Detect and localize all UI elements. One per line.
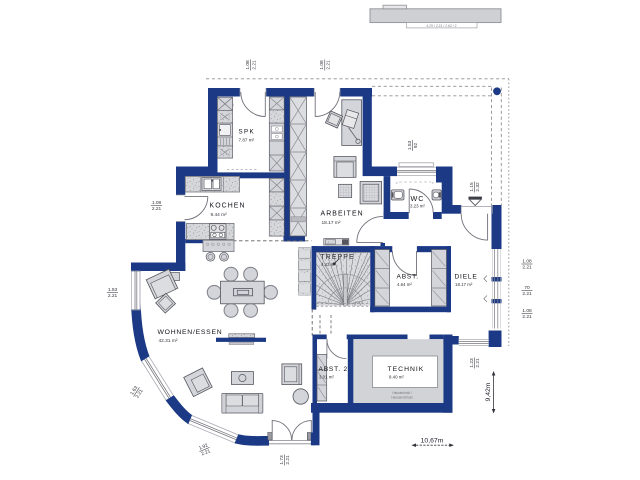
svg-text:DIELE: DIELE bbox=[455, 274, 478, 281]
svg-text:9.44 m²: 9.44 m² bbox=[211, 212, 228, 218]
svg-text:2.21: 2.21 bbox=[522, 314, 532, 320]
svg-text:18.17 m²: 18.17 m² bbox=[322, 220, 341, 226]
svg-text:42.31 m²: 42.31 m² bbox=[159, 338, 178, 344]
svg-text:2.21: 2.21 bbox=[522, 291, 532, 297]
svg-text:2.21: 2.21 bbox=[251, 60, 257, 70]
svg-text:TREPPE: TREPPE bbox=[321, 254, 355, 261]
svg-text:WC: WC bbox=[411, 194, 425, 203]
svg-text:4.43 m²: 4.43 m² bbox=[321, 262, 336, 267]
svg-text:ARBEITEN: ARBEITEN bbox=[321, 211, 364, 218]
svg-text:4.64 m²: 4.64 m² bbox=[397, 282, 412, 287]
svg-text:TECHNIK: TECHNIK bbox=[388, 366, 425, 373]
svg-text:2.32: 2.32 bbox=[475, 182, 481, 192]
svg-text:9,42m: 9,42m bbox=[485, 382, 492, 401]
svg-text:1.08: 1.08 bbox=[522, 308, 532, 314]
svg-text:1.08: 1.08 bbox=[522, 258, 532, 264]
svg-text:2.21: 2.21 bbox=[152, 206, 162, 212]
svg-text:ABST. 2: ABST. 2 bbox=[319, 366, 348, 373]
svg-text:18.17 m²: 18.17 m² bbox=[455, 282, 473, 287]
svg-text:1.08: 1.08 bbox=[245, 60, 251, 70]
svg-text:1.73: 1.73 bbox=[279, 455, 285, 465]
svg-text:Hausanschluss: Hausanschluss bbox=[391, 396, 413, 400]
svg-text:2.21: 2.21 bbox=[285, 455, 291, 465]
svg-text:ABST.: ABST. bbox=[397, 274, 419, 281]
svg-text:1.23: 1.23 bbox=[469, 358, 475, 368]
svg-text:4.29 / 2.21 / 2.62 / 2: 4.29 / 2.21 / 2.62 / 2 bbox=[426, 24, 456, 28]
svg-text:10,67m: 10,67m bbox=[421, 438, 444, 445]
svg-text:1.15: 1.15 bbox=[469, 182, 475, 192]
svg-text:3.01 m²: 3.01 m² bbox=[319, 375, 334, 380]
svg-text:2.21: 2.21 bbox=[108, 293, 118, 299]
svg-text:70: 70 bbox=[524, 285, 530, 291]
svg-text:8.40 m²: 8.40 m² bbox=[389, 375, 404, 380]
svg-text:2.21: 2.21 bbox=[522, 265, 532, 271]
svg-text:92: 92 bbox=[413, 143, 419, 149]
svg-text:1.53: 1.53 bbox=[108, 287, 118, 293]
svg-text:3.23 m²: 3.23 m² bbox=[410, 203, 425, 208]
svg-text:1.08: 1.08 bbox=[152, 200, 162, 206]
svg-text:1.08: 1.08 bbox=[319, 60, 325, 70]
svg-text:SPK: SPK bbox=[239, 129, 256, 136]
svg-text:7.87 m²: 7.87 m² bbox=[239, 138, 255, 143]
svg-text:2.21: 2.21 bbox=[325, 60, 331, 70]
svg-text:2.21: 2.21 bbox=[475, 358, 481, 368]
svg-text:1.53: 1.53 bbox=[407, 141, 413, 151]
svg-text:Haustechnik /: Haustechnik / bbox=[392, 391, 411, 395]
svg-text:KOCHEN: KOCHEN bbox=[210, 203, 246, 210]
svg-text:WOHNEN/ESSEN: WOHNEN/ESSEN bbox=[158, 329, 223, 336]
